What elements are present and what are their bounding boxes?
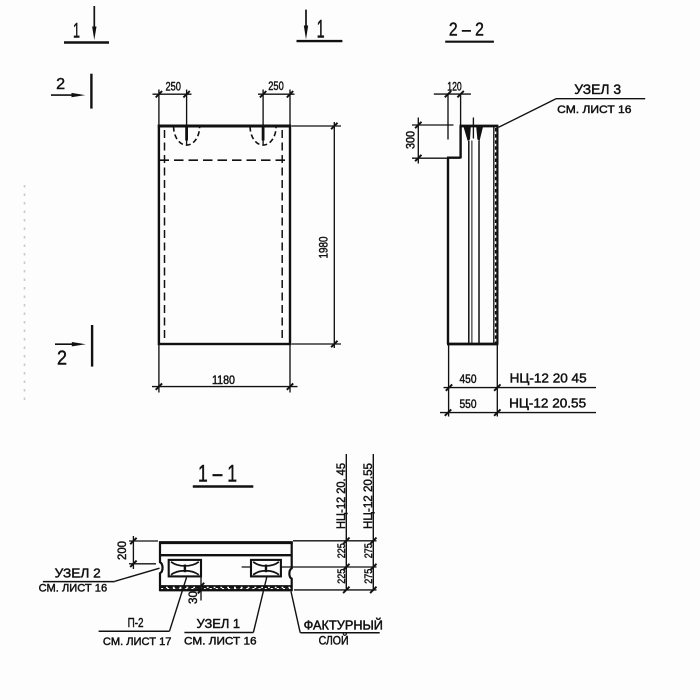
svg-text:1 – 1: 1 – 1 — [198, 461, 237, 488]
svg-text:275: 275 — [363, 543, 375, 558]
svg-text:П-2: П-2 — [128, 615, 144, 630]
svg-text:2: 2 — [56, 76, 65, 93]
svg-text:НЦ-12 20.55: НЦ-12 20.55 — [363, 463, 375, 529]
svg-text:1: 1 — [73, 20, 80, 43]
svg-text:УЗЕЛ 2: УЗЕЛ 2 — [55, 566, 101, 581]
svg-text:2: 2 — [57, 347, 67, 369]
svg-text:УЗЕЛ 1: УЗЕЛ 1 — [197, 616, 241, 631]
svg-text:30: 30 — [186, 591, 200, 604]
svg-text:300: 300 — [403, 131, 417, 149]
svg-text:СЛОЙ: СЛОЙ — [319, 634, 349, 647]
svg-text:СМ. ЛИСТ 17: СМ. ЛИСТ 17 — [103, 636, 172, 648]
svg-text:225: 225 — [336, 543, 348, 558]
svg-text:1980: 1980 — [317, 236, 331, 258]
svg-text:СМ. ЛИСТ 16: СМ. ЛИСТ 16 — [39, 582, 108, 594]
svg-text:НЦ-12 20.55: НЦ-12 20.55 — [509, 397, 586, 411]
svg-text:450: 450 — [460, 372, 477, 386]
svg-text:550: 550 — [460, 397, 477, 411]
svg-text:120: 120 — [447, 79, 462, 93]
svg-text:УЗЕЛ 3: УЗЕЛ 3 — [574, 81, 621, 97]
svg-text:НЦ-12 20 45: НЦ-12 20 45 — [510, 371, 587, 385]
svg-text:1180: 1180 — [212, 373, 235, 387]
svg-text:225: 225 — [336, 569, 348, 584]
svg-text:250: 250 — [268, 79, 284, 93]
svg-text:200: 200 — [115, 541, 129, 560]
svg-text:250: 250 — [165, 80, 181, 94]
svg-text:НЦ-12 20. 45: НЦ-12 20. 45 — [336, 463, 348, 529]
svg-text:275: 275 — [363, 569, 375, 584]
svg-text:1: 1 — [317, 16, 325, 44]
svg-text:2 – 2: 2 – 2 — [449, 19, 484, 39]
svg-text:ФАКТУРНЫЙ: ФАКТУРНЫЙ — [304, 617, 383, 632]
svg-text:СМ. ЛИСТ 16: СМ. ЛИСТ 16 — [184, 635, 257, 647]
svg-text:СМ. ЛИСТ 16: СМ. ЛИСТ 16 — [557, 104, 631, 116]
